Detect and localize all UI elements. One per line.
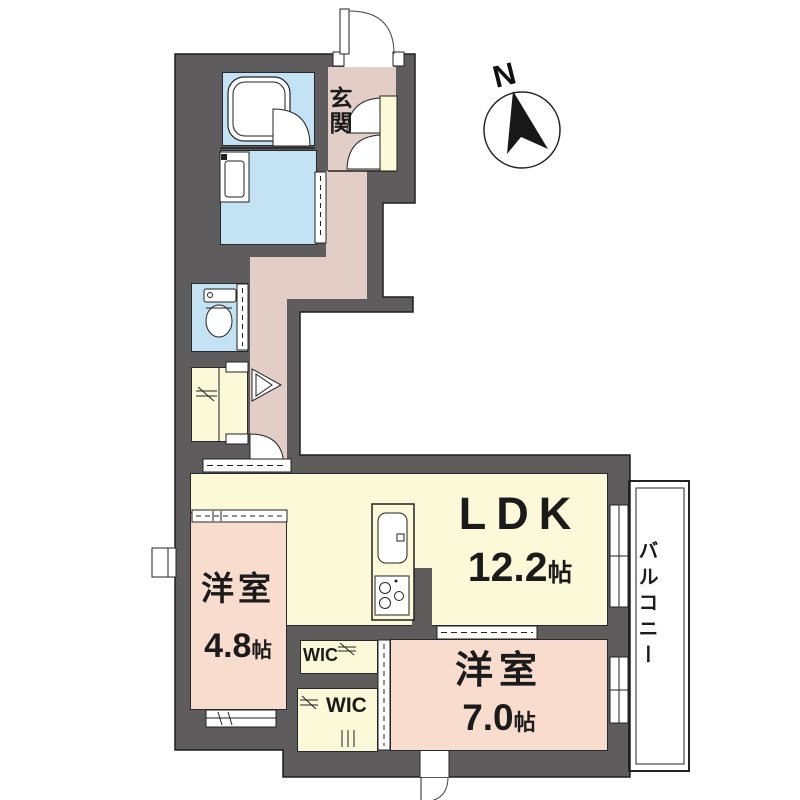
label-entrance: 玄関 (327, 86, 350, 136)
floor-plan: N 玄関 LDK 12.2帖 洋室 4.8帖 洋室 7.0帖 WIC WIC バ… (0, 0, 800, 800)
label-wic-lower: WIC (326, 695, 367, 716)
compass-needle-icon (507, 91, 548, 154)
wall-lower-block-ext (283, 750, 630, 777)
label-ldk-size: 12.2帖 (420, 547, 620, 588)
wall-corridor-step (287, 297, 413, 312)
label-bedroom-large-size: 7.0帖 (390, 699, 608, 736)
compass-circle (484, 92, 560, 168)
compass-north-label: N (489, 55, 519, 94)
hall-closet (191, 367, 248, 442)
label-bedroom-small: 洋室 (186, 572, 290, 605)
hallway-upper (326, 171, 367, 259)
label-balcony: バルコニー (636, 540, 656, 760)
room-washroom (220, 150, 317, 245)
room-bathroom (222, 72, 315, 146)
hallway-turn (250, 257, 367, 299)
label-ldk: LDK (420, 491, 620, 536)
bedroom-small-window-left (152, 548, 176, 577)
room-bedroom-small (190, 512, 287, 710)
label-bedroom-small-size: 4.8帖 (183, 629, 293, 663)
compass: N (484, 55, 560, 168)
room-toilet (191, 283, 248, 352)
hallway-lower (250, 299, 287, 463)
label-bedroom-large: 洋室 (390, 652, 608, 690)
label-wic-upper: WIC (303, 646, 338, 664)
